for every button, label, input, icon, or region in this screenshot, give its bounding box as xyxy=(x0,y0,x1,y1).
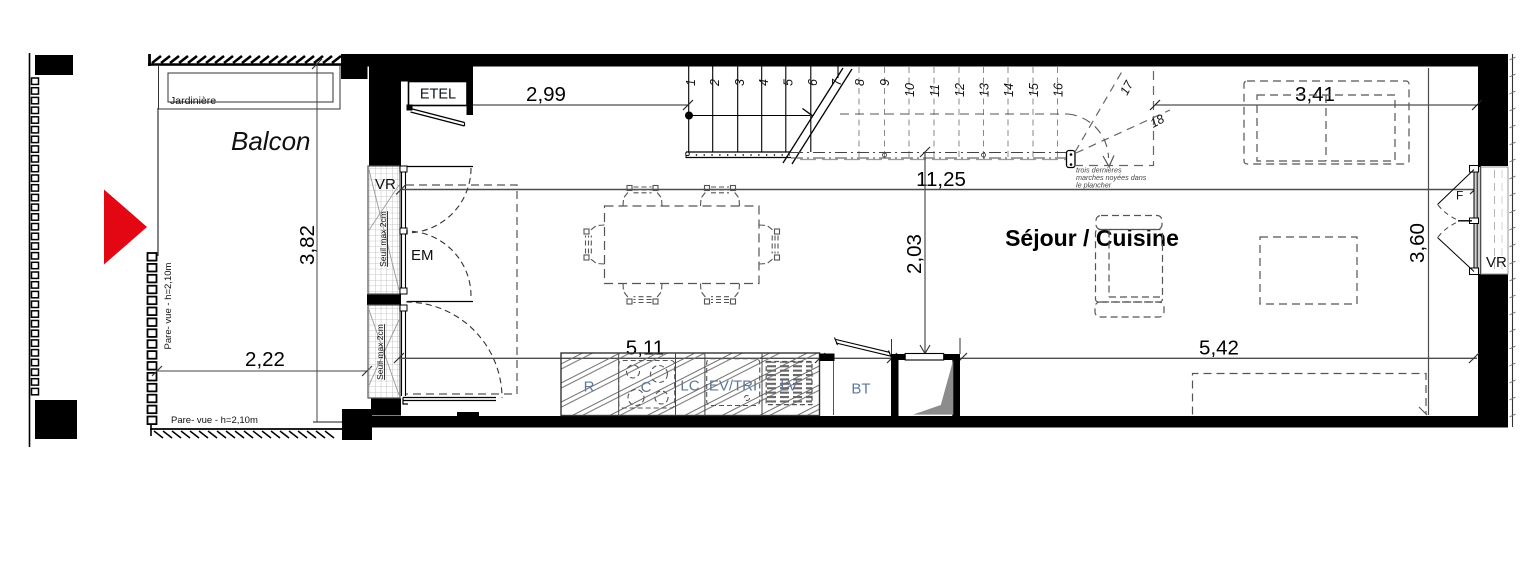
svg-text:2,99: 2,99 xyxy=(526,83,566,106)
svg-text:BT: BT xyxy=(851,381,870,398)
svg-text:4: 4 xyxy=(757,79,771,86)
svg-text:R: R xyxy=(584,379,595,396)
svg-text:Balcon: Balcon xyxy=(231,126,311,156)
svg-text:15: 15 xyxy=(1027,83,1041,97)
svg-text:8: 8 xyxy=(853,79,867,86)
svg-text:EM: EM xyxy=(411,247,434,264)
svg-text:le plancher: le plancher xyxy=(1076,181,1112,190)
svg-text:EV/TRI: EV/TRI xyxy=(709,378,757,395)
svg-text:12: 12 xyxy=(953,83,967,97)
svg-text:VR: VR xyxy=(375,176,396,193)
svg-text:11,25: 11,25 xyxy=(916,168,966,191)
svg-text:3,82: 3,82 xyxy=(296,225,319,265)
svg-text:14: 14 xyxy=(1002,83,1016,97)
svg-text:Pare- vue - h=2,10m: Pare- vue - h=2,10m xyxy=(163,262,174,349)
svg-text:C: C xyxy=(641,379,652,396)
svg-text:ETEL: ETEL xyxy=(420,87,456,103)
svg-text:11: 11 xyxy=(928,84,942,97)
svg-text:LV: LV xyxy=(780,378,797,395)
svg-text:3: 3 xyxy=(733,79,747,86)
svg-text:2,22: 2,22 xyxy=(245,348,285,371)
svg-text:Seuil max 2cm: Seuil max 2cm xyxy=(378,211,388,267)
svg-text:3,60: 3,60 xyxy=(1406,223,1429,263)
svg-text:VR: VR xyxy=(1486,254,1507,271)
svg-text:13: 13 xyxy=(978,83,992,97)
svg-text:6: 6 xyxy=(806,79,820,86)
svg-text:Seuil max 2cm: Seuil max 2cm xyxy=(375,324,385,380)
svg-text:5: 5 xyxy=(782,79,796,86)
svg-text:9: 9 xyxy=(878,79,892,86)
svg-text:16: 16 xyxy=(1052,83,1066,97)
svg-text:2,03: 2,03 xyxy=(903,234,926,274)
svg-text:10: 10 xyxy=(903,83,917,97)
svg-text:Jardinière: Jardinière xyxy=(170,95,216,107)
svg-text:7: 7 xyxy=(830,78,844,86)
svg-text:5,42: 5,42 xyxy=(1199,337,1239,360)
svg-text:1: 1 xyxy=(684,79,698,86)
svg-text:LC: LC xyxy=(680,378,699,395)
svg-text:2: 2 xyxy=(708,79,722,87)
svg-text:F: F xyxy=(1456,189,1463,203)
svg-text:Pare- vue - h=2,10m: Pare- vue - h=2,10m xyxy=(171,415,258,426)
